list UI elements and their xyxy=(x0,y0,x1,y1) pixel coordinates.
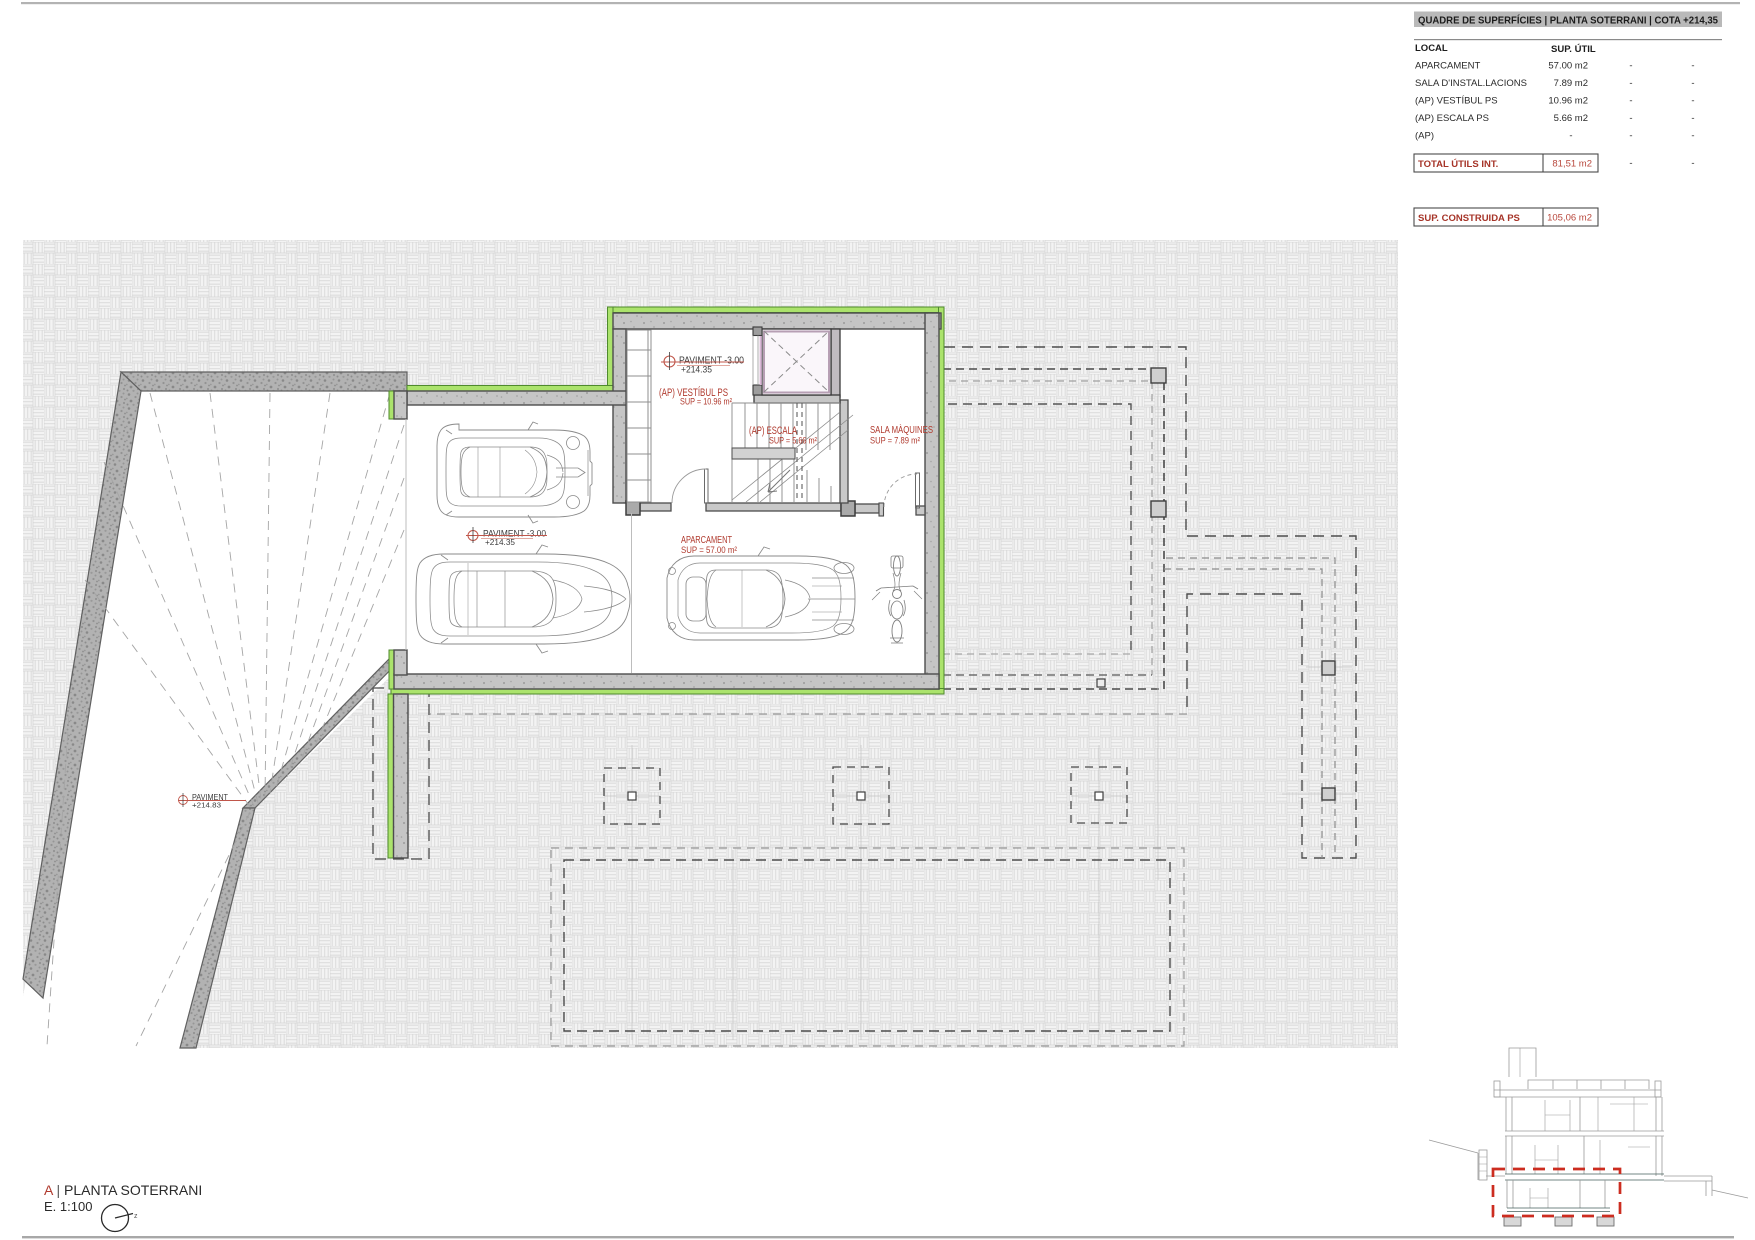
svg-text:-: - xyxy=(1629,78,1632,89)
svg-text:SUP = 5.66 m²: SUP = 5.66 m² xyxy=(769,436,817,447)
svg-text:(AP) ESCALA PS: (AP) ESCALA PS xyxy=(1415,113,1489,124)
svg-text:-: - xyxy=(1629,131,1632,142)
svg-text:-: - xyxy=(1629,61,1632,72)
svg-text:5.66 m2: 5.66 m2 xyxy=(1554,113,1588,124)
svg-text:z: z xyxy=(134,1213,138,1220)
svg-text:-: - xyxy=(1569,131,1572,142)
svg-text:+214.83: +214.83 xyxy=(192,801,221,810)
svg-text:-: - xyxy=(1629,113,1632,124)
svg-text:A | PLANTA SOTERRANI: A | PLANTA SOTERRANI xyxy=(44,1182,202,1198)
svg-text:SUP = 57.00 m²: SUP = 57.00 m² xyxy=(681,545,737,556)
svg-text:SUP. CONSTRUIDA PS: SUP. CONSTRUIDA PS xyxy=(1418,213,1520,224)
svg-text:LOCAL: LOCAL xyxy=(1415,43,1448,54)
svg-text:-: - xyxy=(1691,131,1694,142)
svg-text:10.96 m2: 10.96 m2 xyxy=(1548,96,1588,107)
svg-text:(AP): (AP) xyxy=(1415,131,1434,142)
svg-text:105,06 m2: 105,06 m2 xyxy=(1547,213,1592,224)
svg-text:SUP. ÚTIL: SUP. ÚTIL xyxy=(1551,43,1596,55)
svg-text:-: - xyxy=(1691,78,1694,89)
svg-text:SALA D'INSTAL.LACIONS: SALA D'INSTAL.LACIONS xyxy=(1415,78,1527,89)
svg-text:-: - xyxy=(1691,113,1694,124)
svg-text:-: - xyxy=(1691,96,1694,107)
svg-text:SUP = 10.96 m²: SUP = 10.96 m² xyxy=(680,397,732,408)
svg-text:SUP = 7.89 m²: SUP = 7.89 m² xyxy=(870,436,920,447)
svg-text:APARCAMENT: APARCAMENT xyxy=(1415,61,1480,72)
svg-text:SALA MÀQUINES: SALA MÀQUINES xyxy=(870,423,933,436)
svg-text:7.89 m2: 7.89 m2 xyxy=(1554,78,1588,89)
svg-text:81,51 m2: 81,51 m2 xyxy=(1552,159,1592,170)
svg-text:TOTAL ÚTILS INT.: TOTAL ÚTILS INT. xyxy=(1418,158,1498,170)
svg-text:-: - xyxy=(1629,158,1632,169)
svg-text:-: - xyxy=(1629,96,1632,107)
svg-text:57.00 m2: 57.00 m2 xyxy=(1548,61,1588,72)
svg-text:QUADRE DE SUPERFÍCIES | PLANTA: QUADRE DE SUPERFÍCIES | PLANTA SOTERRANI… xyxy=(1418,14,1718,27)
svg-text:+214.35: +214.35 xyxy=(681,365,712,375)
svg-text:-: - xyxy=(1691,158,1694,169)
svg-text:-: - xyxy=(1691,61,1694,72)
svg-text:(AP) VESTÍBUL PS: (AP) VESTÍBUL PS xyxy=(1415,96,1498,107)
svg-text:E. 1:100: E. 1:100 xyxy=(44,1199,92,1214)
